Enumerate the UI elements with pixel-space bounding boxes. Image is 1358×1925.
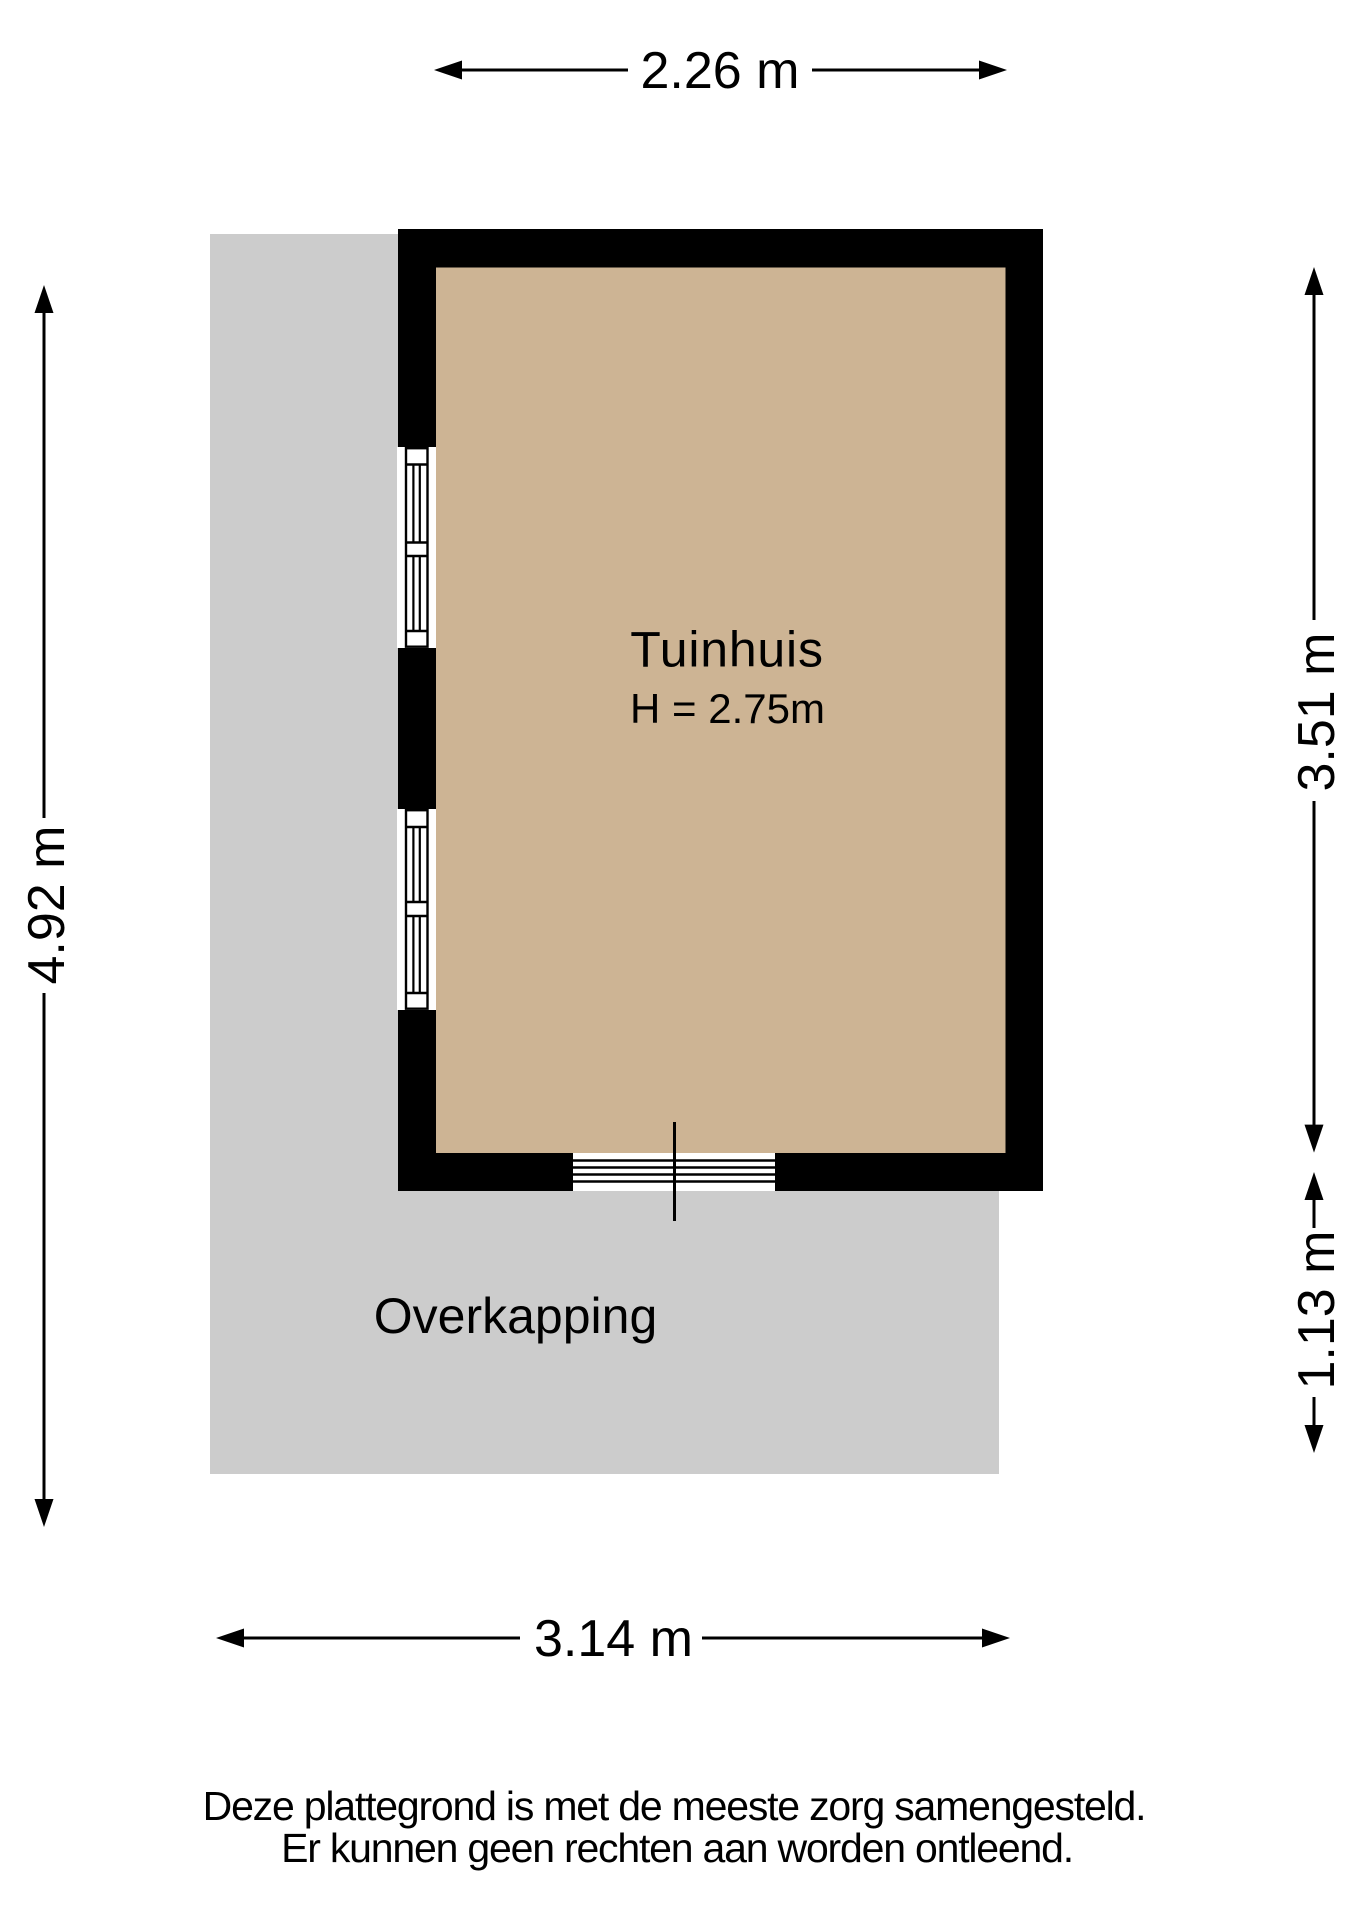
svg-text:1.13 m: 1.13 m <box>1288 1231 1346 1390</box>
svg-text:Er kunnen geen rechten aan wor: Er kunnen geen rechten aan worden ontlee… <box>281 1825 1073 1871</box>
svg-text:Deze plattegrond is met de mee: Deze plattegrond is met de meeste zorg s… <box>203 1783 1146 1829</box>
svg-text:4.92 m: 4.92 m <box>18 826 76 985</box>
svg-text:Tuinhuis: Tuinhuis <box>630 622 824 678</box>
svg-text:Overkapping: Overkapping <box>374 1288 658 1344</box>
svg-text:H = 2.75m: H = 2.75m <box>630 685 825 732</box>
svg-text:2.26 m: 2.26 m <box>641 42 800 100</box>
svg-text:3.14 m: 3.14 m <box>534 1610 693 1668</box>
svg-text:3.51 m: 3.51 m <box>1288 633 1346 792</box>
